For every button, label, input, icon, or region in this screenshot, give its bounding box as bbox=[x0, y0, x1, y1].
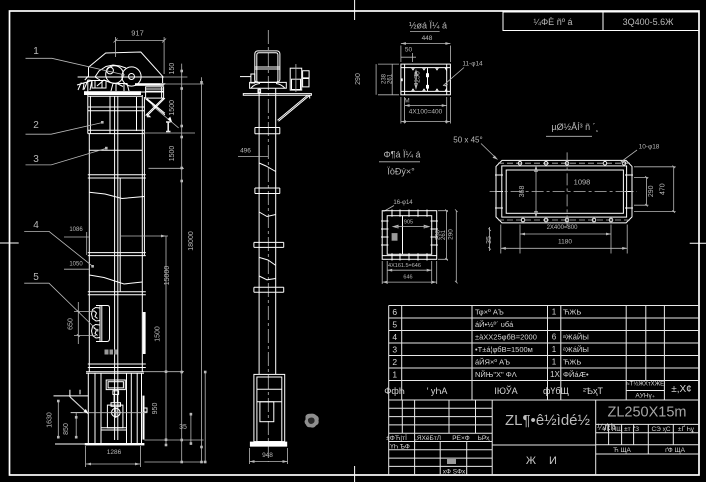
svg-text:ᵃЖáЙЫ: ᵃЖáЙЫ bbox=[563, 333, 589, 342]
svg-text:ҮҐ ЯЩ ±т ґЗ: ҮҐ ЯЩ ±т ґЗ bbox=[603, 424, 639, 433]
svg-text:ᵃЖáЙЫ: ᵃЖáЙЫ bbox=[563, 345, 589, 354]
svg-text:1: 1 bbox=[33, 46, 39, 57]
svg-text:368: 368 bbox=[519, 186, 526, 198]
svg-text:ZL¶•ê½ìdé½: ZL¶•ê½ìdé½ bbox=[505, 412, 591, 429]
svg-text:≈Τ½ЖΧтΧЖЕ: ≈Τ½ЖΧтΧЖЕ bbox=[626, 381, 664, 388]
svg-text:16-φ14: 16-φ14 bbox=[393, 200, 413, 206]
svg-text:1050: 1050 bbox=[69, 261, 83, 267]
svg-text:2Χ400=800: 2Χ400=800 bbox=[547, 225, 579, 231]
svg-text:СЭ ҳС: СЭ ҳС bbox=[651, 426, 670, 433]
svg-text:áЙ•½º´ υбá: áЙ•½º´ υбá bbox=[475, 320, 514, 329]
svg-text:496: 496 bbox=[240, 147, 251, 154]
svg-text:±àΧΧ25φбΒ=2000: ±àΧΧ25φбΒ=2000 bbox=[475, 333, 537, 342]
svg-text:ҮҺ ѢФ: ҮҺ ѢФ bbox=[390, 443, 410, 450]
svg-text:150: 150 bbox=[169, 63, 176, 75]
svg-text:И: И bbox=[549, 455, 557, 467]
svg-text:290: 290 bbox=[648, 185, 655, 197]
svg-text:261: 261 bbox=[441, 229, 447, 240]
svg-text:5: 5 bbox=[33, 272, 39, 283]
svg-text:1098: 1098 bbox=[574, 178, 591, 187]
svg-text:1630: 1630 bbox=[47, 412, 54, 428]
svg-text:1: 1 bbox=[552, 345, 557, 354]
svg-text:Τφ×º ΑЪ: Τφ×º ΑЪ bbox=[475, 308, 504, 317]
svg-text:646: 646 bbox=[403, 274, 412, 280]
svg-text:хФ ЅФх: хФ ЅФх bbox=[443, 469, 466, 476]
svg-text:1086: 1086 bbox=[69, 227, 83, 233]
svg-text:,ЯΧёБтЛ: ,ЯΧёБтЛ bbox=[415, 435, 441, 442]
svg-text:6: 6 bbox=[552, 333, 557, 342]
svg-text:4: 4 bbox=[33, 220, 39, 231]
svg-text:448: 448 bbox=[422, 35, 433, 42]
svg-text:1: 1 bbox=[552, 308, 557, 317]
svg-text:290: 290 bbox=[448, 229, 455, 240]
svg-text:ΑУНү₊: ΑУНү₊ bbox=[635, 393, 655, 400]
svg-text:4: 4 bbox=[392, 332, 397, 342]
svg-text:ΦфҺ: ΦфҺ bbox=[384, 386, 405, 396]
svg-text:1500: 1500 bbox=[169, 146, 176, 162]
svg-text:ІЮЎА: ІЮЎА bbox=[494, 385, 517, 396]
svg-text:2: 2 bbox=[392, 357, 397, 367]
svg-text:948: 948 bbox=[262, 452, 273, 459]
svg-text:950: 950 bbox=[152, 403, 159, 415]
svg-text:¼ΦÈ ñº á: ¼ΦÈ ñº á bbox=[534, 17, 573, 27]
svg-text:•Τ±á¦φбΒ=1500м: •Τ±á¦φбΒ=1500м bbox=[475, 345, 533, 354]
svg-text:±Ґ Һұ: ±Ґ Һұ bbox=[678, 424, 695, 433]
svg-text:261: 261 bbox=[388, 73, 394, 84]
svg-text:Ж: Ж bbox=[526, 455, 536, 467]
svg-text:Φ¶á Ï¼ á: Φ¶á Ï¼ á bbox=[383, 150, 420, 160]
svg-text:ґФ ЩА: ґФ ЩА bbox=[665, 446, 686, 454]
svg-text:3: 3 bbox=[33, 154, 39, 165]
svg-text:18000: 18000 bbox=[188, 231, 195, 251]
svg-text:1500: 1500 bbox=[169, 100, 176, 116]
svg-text:±,Χ¢: ±,Χ¢ bbox=[671, 384, 692, 395]
svg-text:ÏòÐý×°: ÏòÐý×° bbox=[387, 167, 415, 177]
svg-text:′ уҺА: ′ уҺА bbox=[427, 386, 448, 396]
svg-text:M: M bbox=[404, 98, 409, 105]
svg-text:фҮбЩ: фҮбЩ bbox=[543, 386, 570, 396]
svg-text:3: 3 bbox=[392, 345, 397, 355]
svg-text:3Q400-5.6Ж: 3Q400-5.6Ж bbox=[623, 17, 675, 27]
svg-text:6: 6 bbox=[392, 307, 397, 317]
svg-text:1180: 1180 bbox=[558, 239, 572, 246]
svg-text:50: 50 bbox=[405, 46, 413, 53]
svg-text:ZL250X15m: ZL250X15m bbox=[608, 405, 687, 421]
svg-text:11-φ14: 11-φ14 bbox=[462, 61, 483, 68]
svg-text:1Χ: 1Χ bbox=[550, 370, 560, 379]
svg-text:4X161.5=646: 4X161.5=646 bbox=[388, 263, 421, 269]
svg-text:2: 2 bbox=[33, 120, 39, 131]
svg-text:½øá Ï¼ á: ½øá Ï¼ á bbox=[409, 21, 447, 31]
svg-text:10-φ18: 10-φ18 bbox=[639, 143, 660, 150]
svg-text:µØ½ÅÍ³ ñ ´¸: µØ½ÅÍ³ ñ ´¸ bbox=[551, 122, 598, 132]
svg-text:5: 5 bbox=[392, 320, 397, 330]
svg-text:áЙЯ×º ΑЪ: áЙЯ×º ΑЪ bbox=[475, 358, 510, 367]
svg-text:1500: 1500 bbox=[155, 326, 162, 342]
svg-text:35: 35 bbox=[486, 236, 493, 244]
svg-text:ΦЙáÆ•: ΦЙáÆ• bbox=[563, 370, 589, 379]
svg-text:ҎЕ×Ф: ҎЕ×Ф bbox=[452, 435, 469, 442]
svg-text:ЬҎҳ: ЬҎҳ bbox=[478, 435, 491, 442]
svg-text:905: 905 bbox=[404, 219, 413, 225]
svg-text:ΝЙЊ"Χ" ΦΛ: ΝЙЊ"Χ" ΦΛ bbox=[475, 370, 517, 379]
svg-text:470: 470 bbox=[660, 183, 667, 195]
svg-text:Ћ ЩА: Ћ ЩА bbox=[613, 447, 631, 454]
svg-text:250: 250 bbox=[415, 71, 422, 83]
svg-text:15000: 15000 bbox=[164, 266, 171, 286]
svg-text:50 x 45°: 50 x 45° bbox=[453, 136, 482, 145]
svg-text:²ѢҳΤ: ²ѢҳΤ bbox=[583, 386, 603, 396]
svg-text:ЋЖЬ: ЋЖЬ bbox=[563, 308, 581, 317]
svg-text:290: 290 bbox=[355, 73, 362, 85]
svg-text:1: 1 bbox=[392, 370, 397, 380]
svg-text:1286: 1286 bbox=[107, 449, 122, 456]
svg-text:850: 850 bbox=[63, 423, 70, 435]
svg-text:650: 650 bbox=[68, 318, 75, 330]
svg-text:ЋЖЬ: ЋЖЬ bbox=[563, 358, 581, 367]
svg-text:±ΦЋ|тЇ: ±ΦЋ|тЇ bbox=[386, 434, 407, 442]
svg-text:35: 35 bbox=[179, 424, 187, 431]
svg-text:4X100=400: 4X100=400 bbox=[409, 109, 443, 116]
svg-text:917: 917 bbox=[131, 29, 144, 38]
svg-text:1: 1 bbox=[552, 358, 557, 367]
